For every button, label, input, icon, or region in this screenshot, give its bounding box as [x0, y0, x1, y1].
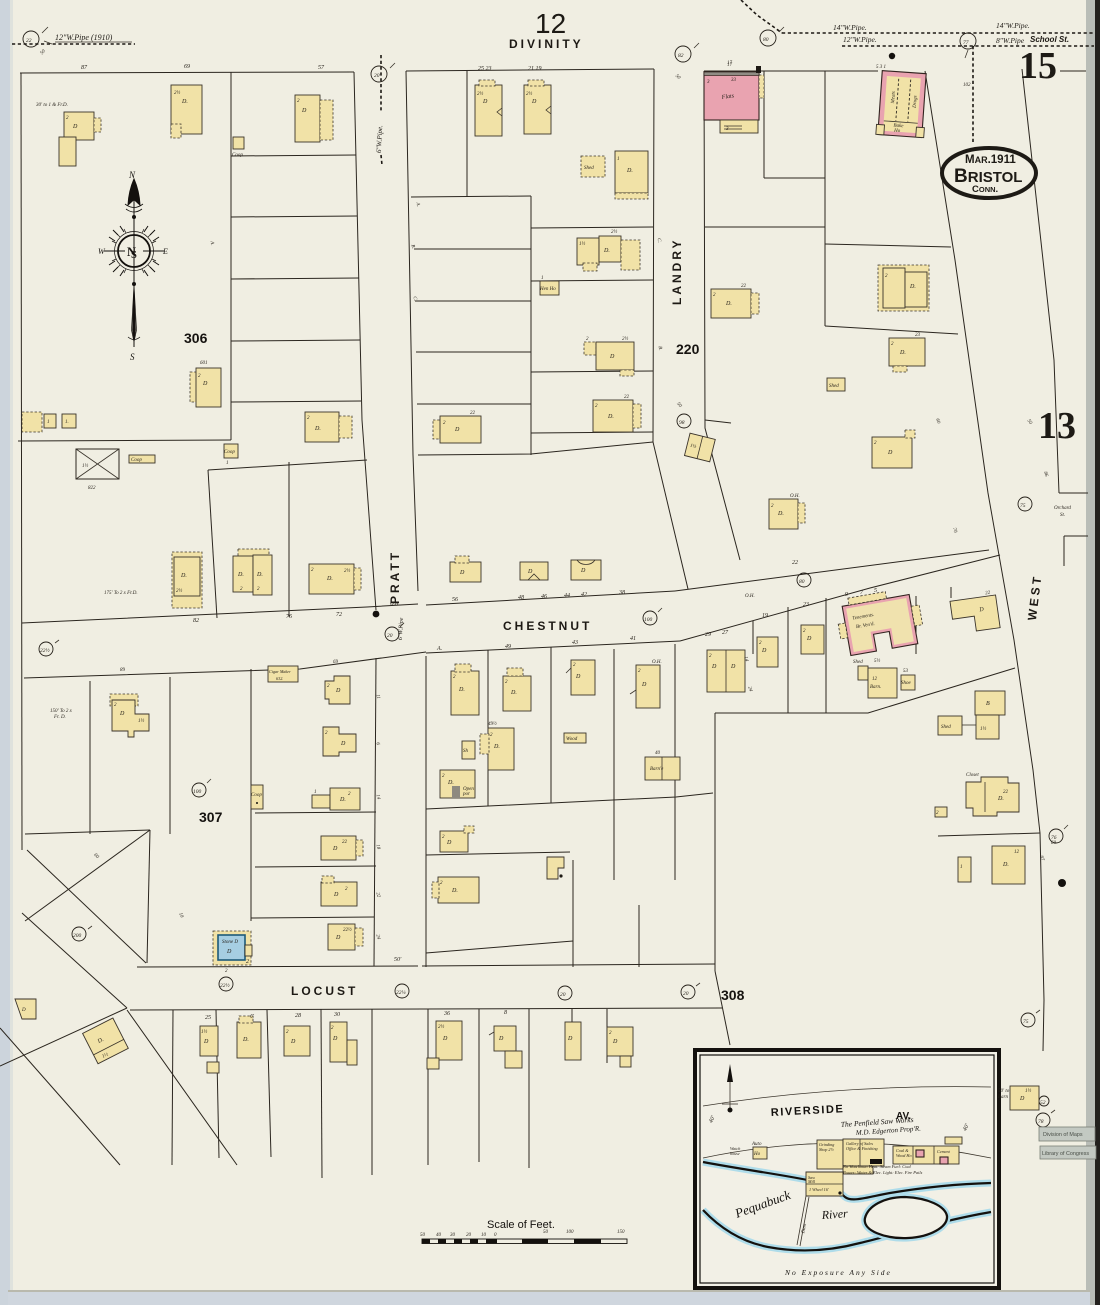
- svg-text:D: D: [612, 1039, 618, 1045]
- svg-text:12: 12: [872, 677, 878, 682]
- svg-text:Shed: Shed: [853, 660, 863, 665]
- svg-text:Library of Congress: Library of Congress: [1042, 1151, 1089, 1157]
- svg-text:D: D: [482, 99, 488, 105]
- svg-text:27: 27: [722, 630, 729, 636]
- svg-text:D: D: [72, 124, 78, 130]
- svg-text:1: 1: [960, 865, 963, 870]
- svg-text:22: 22: [741, 284, 747, 289]
- svg-text:School St.: School St.: [1030, 35, 1069, 44]
- svg-text:2½: 2½: [174, 91, 181, 96]
- svg-text:44: 44: [564, 592, 570, 599]
- svg-text:Shoe: Shoe: [901, 681, 912, 686]
- svg-text:D: D: [567, 1036, 573, 1042]
- svg-text:D: D: [459, 570, 465, 576]
- svg-text:22: 22: [342, 840, 348, 845]
- svg-text:D: D: [580, 568, 586, 574]
- svg-text:A.: A.: [436, 646, 442, 652]
- svg-text:5½: 5½: [874, 659, 881, 664]
- svg-text:D: D: [442, 1036, 448, 1042]
- svg-text:13: 13: [1038, 405, 1076, 447]
- svg-text:1½: 1½: [579, 242, 586, 247]
- svg-text:20: 20: [683, 991, 689, 997]
- svg-text:601: 601: [200, 361, 208, 366]
- svg-text:1½: 1½: [138, 719, 145, 724]
- svg-text:Wood: Wood: [566, 737, 578, 742]
- svg-text:D.: D.: [725, 301, 732, 307]
- svg-text:D: D: [119, 711, 125, 717]
- svg-text:2: 2: [246, 959, 249, 965]
- svg-text:CHESTNUT: CHESTNUT: [503, 619, 592, 633]
- svg-text:40: 40: [436, 1233, 442, 1238]
- svg-text:75: 75: [1020, 503, 1026, 509]
- svg-text:Stone D: Stone D: [222, 940, 238, 945]
- svg-text:LANDRY: LANDRY: [670, 237, 684, 305]
- svg-text:33: 33: [731, 78, 737, 83]
- svg-text:D: D: [641, 682, 647, 688]
- svg-text:69: 69: [184, 64, 190, 70]
- svg-text:D: D: [609, 354, 615, 360]
- svg-text:O.H.: O.H.: [790, 494, 800, 499]
- svg-text:D: D: [730, 664, 736, 670]
- svg-text:D: D: [761, 648, 767, 654]
- svg-text:D: D: [446, 840, 452, 846]
- svg-text:22: 22: [1003, 790, 1009, 795]
- svg-text:19: 19: [762, 613, 768, 619]
- svg-text:220: 220: [676, 341, 700, 357]
- svg-text:2½: 2½: [526, 92, 533, 97]
- svg-text:River: River: [820, 1206, 848, 1222]
- svg-text:22½: 22½: [343, 928, 352, 933]
- svg-text:Power: Water & Elec. Light: El: Power: Water & Elec. Light: Elec. Fire P…: [842, 1170, 923, 1175]
- svg-text:D.: D.: [326, 576, 333, 582]
- svg-text:D.: D.: [237, 572, 244, 578]
- svg-text:C.: C.: [656, 238, 661, 243]
- svg-text:Hen Ho: Hen Ho: [539, 287, 556, 292]
- svg-text:D.: D.: [242, 1037, 249, 1043]
- svg-text:Ho: Ho: [893, 129, 901, 135]
- svg-text:D.: D.: [899, 350, 906, 356]
- svg-text:D: D: [806, 636, 812, 642]
- svg-text:S: S: [131, 250, 137, 261]
- svg-text:D.: D.: [458, 687, 465, 693]
- svg-text:D.: D.: [909, 284, 916, 290]
- svg-text:1½: 1½: [1025, 1089, 1032, 1094]
- svg-text:822: 822: [88, 486, 96, 491]
- svg-text:O.H.: O.H.: [652, 660, 662, 665]
- svg-text:41: 41: [630, 635, 636, 642]
- svg-text:25 23: 25 23: [478, 66, 492, 72]
- svg-text:40: 40: [655, 751, 661, 756]
- svg-text:Sh: Sh: [463, 749, 469, 754]
- svg-text:22½: 22½: [220, 982, 230, 989]
- svg-text:82: 82: [678, 53, 684, 59]
- svg-text:MAR.1911: MAR.1911: [965, 154, 1016, 166]
- svg-text:D.: D.: [451, 888, 458, 894]
- svg-text:98: 98: [679, 420, 685, 426]
- svg-text:1.: 1.: [65, 420, 69, 425]
- svg-text:1½: 1½: [82, 464, 89, 469]
- svg-text:Wood Ho: Wood Ho: [896, 1153, 912, 1158]
- svg-text:D: D: [226, 949, 232, 955]
- svg-text:Division of Maps: Division of Maps: [1043, 1132, 1083, 1138]
- svg-text:Barn'e: Barn'e: [650, 767, 664, 772]
- svg-text:69: 69: [333, 660, 339, 665]
- svg-text:D.: D.: [603, 248, 610, 254]
- svg-text:D.: D.: [447, 780, 454, 786]
- svg-text:14"W.Pipe.: 14"W.Pipe.: [833, 23, 867, 32]
- svg-text:D.: D.: [607, 414, 614, 420]
- svg-text:N: N: [128, 170, 136, 180]
- svg-text:Shed: Shed: [941, 725, 951, 730]
- svg-text:D.: D.: [997, 796, 1004, 802]
- svg-text:72: 72: [336, 612, 342, 618]
- svg-text:307: 307: [199, 809, 223, 825]
- svg-text:D: D: [498, 1036, 504, 1042]
- svg-text:76: 76: [1051, 835, 1057, 841]
- svg-text:30: 30: [450, 1233, 456, 1238]
- svg-text:D.: D.: [626, 168, 633, 174]
- svg-text:D: D: [301, 108, 307, 114]
- svg-text:Office & Finishing: Office & Finishing: [846, 1146, 878, 1151]
- svg-text:1: 1: [226, 461, 229, 466]
- svg-text:B.: B.: [657, 346, 662, 351]
- svg-text:Closet: Closet: [966, 773, 979, 778]
- svg-text:PRATT: PRATT: [388, 550, 402, 604]
- svg-text:57: 57: [318, 65, 325, 71]
- svg-text:2½: 2½: [344, 569, 351, 574]
- svg-text:100: 100: [644, 617, 653, 623]
- svg-text:25: 25: [205, 1015, 211, 1021]
- svg-text:D.: D.: [256, 572, 263, 578]
- svg-text:76: 76: [286, 614, 292, 620]
- svg-text:2½: 2½: [611, 230, 618, 235]
- svg-text:O.H.: O.H.: [745, 594, 755, 599]
- svg-text:89: 89: [120, 668, 126, 673]
- svg-text:50': 50': [394, 957, 402, 963]
- svg-text:Auto: Auto: [751, 1142, 762, 1147]
- svg-text:B.: B.: [410, 244, 416, 249]
- svg-text:50: 50: [420, 1233, 426, 1238]
- svg-text:D: D: [21, 1008, 26, 1013]
- svg-text:1: 1: [541, 276, 544, 281]
- svg-text:Shop 2½: Shop 2½: [819, 1147, 835, 1152]
- svg-text:102: 102: [963, 83, 971, 88]
- svg-text:D: D: [531, 99, 537, 105]
- svg-text:22: 22: [624, 395, 630, 400]
- svg-text:Ho: Ho: [753, 1152, 761, 1157]
- svg-text:D.: D.: [510, 690, 517, 696]
- svg-text:20: 20: [387, 633, 393, 639]
- svg-text:D: D: [887, 450, 893, 456]
- svg-text:12"W.Pipe (1910): 12"W.Pipe (1910): [55, 33, 113, 42]
- svg-text:48: 48: [518, 594, 524, 601]
- svg-text:D: D: [290, 1039, 296, 1045]
- svg-text:200: 200: [73, 933, 82, 939]
- svg-text:Barn.: Barn.: [870, 685, 881, 690]
- svg-text:Drugs: Drugs: [913, 95, 919, 109]
- svg-text:11: 11: [375, 694, 381, 699]
- svg-text:No Watchman Heat: Steam Fuel:: No Watchman Heat: Steam Fuel: Coal: [842, 1164, 912, 1169]
- svg-text:O.H.: O.H.: [390, 602, 400, 607]
- svg-text:D: D: [527, 569, 533, 575]
- svg-text:D.: D.: [339, 797, 346, 803]
- svg-text:1: 1: [314, 790, 317, 795]
- svg-text:Barn: Barn: [998, 1095, 1009, 1100]
- svg-text:23: 23: [915, 333, 921, 338]
- svg-text:22: 22: [26, 38, 32, 44]
- svg-text:St.: St.: [1060, 513, 1065, 518]
- svg-text:B: B: [986, 701, 990, 707]
- svg-text:D: D: [202, 381, 208, 387]
- svg-text:D: D: [332, 1036, 338, 1042]
- svg-text:1 Wheel 16': 1 Wheel 16': [809, 1187, 829, 1192]
- svg-text:49½: 49½: [488, 722, 497, 727]
- svg-text:D: D: [711, 664, 717, 670]
- svg-text:30: 30: [333, 1012, 340, 1018]
- svg-text:D: D: [203, 1039, 209, 1045]
- svg-text:308: 308: [721, 987, 745, 1003]
- svg-text:23: 23: [803, 602, 809, 608]
- svg-text:22¼: 22¼: [396, 990, 406, 996]
- svg-text:10: 10: [481, 1233, 487, 1238]
- svg-text:Coop: Coop: [224, 450, 235, 455]
- svg-text:12: 12: [535, 8, 566, 39]
- svg-text:150' To 2 x: 150' To 2 x: [50, 709, 73, 714]
- svg-text:DIVINITY: DIVINITY: [509, 37, 584, 51]
- svg-text:82: 82: [193, 618, 199, 624]
- svg-text:20: 20: [374, 73, 380, 79]
- svg-text:100: 100: [193, 789, 202, 795]
- svg-text:CONN.: CONN.: [972, 184, 998, 195]
- svg-text:D: D: [1019, 1096, 1025, 1102]
- svg-text:D: D: [333, 892, 339, 898]
- svg-text:Coop: Coop: [131, 458, 142, 463]
- svg-text:BRISTOL: BRISTOL: [954, 166, 1022, 187]
- svg-text:No Exposure Any Side: No Exposure Any Side: [784, 1268, 892, 1277]
- svg-text:8: 8: [504, 1010, 507, 1016]
- svg-text:22: 22: [470, 411, 476, 416]
- svg-text:Shed: Shed: [829, 384, 839, 389]
- svg-text:LOCUST: LOCUST: [291, 984, 358, 998]
- svg-text:D: D: [335, 935, 341, 941]
- svg-text:42: 42: [581, 591, 587, 598]
- svg-text:21 19: 21 19: [528, 66, 542, 72]
- svg-text:12: 12: [1014, 850, 1020, 855]
- svg-text:D: D: [335, 688, 341, 694]
- svg-text:Meats: Meats: [891, 91, 897, 105]
- svg-text:36: 36: [443, 1011, 450, 1017]
- svg-text:87: 87: [81, 65, 88, 71]
- svg-text:100: 100: [566, 1230, 574, 1235]
- svg-text:30' to 1 & Fr.D.: 30' to 1 & Fr.D.: [36, 103, 68, 108]
- svg-text:22½: 22½: [40, 647, 50, 654]
- svg-text:38: 38: [618, 590, 625, 596]
- svg-text:1½: 1½: [980, 727, 987, 732]
- svg-text:1½: 1½: [201, 1030, 208, 1035]
- svg-text:150: 150: [617, 1230, 625, 1235]
- svg-text:53: 53: [903, 669, 909, 674]
- svg-text:46: 46: [541, 593, 547, 600]
- svg-text:2½: 2½: [438, 1025, 445, 1030]
- svg-text:632.: 632.: [276, 676, 283, 681]
- svg-text:2½: 2½: [176, 589, 183, 594]
- svg-text:1: 1: [617, 157, 620, 162]
- svg-text:77: 77: [963, 40, 969, 46]
- svg-text:52: 52: [1040, 1100, 1046, 1106]
- svg-text:Mill: Mill: [807, 1179, 816, 1184]
- svg-text:Orchard: Orchard: [1054, 506, 1071, 511]
- svg-text:D: D: [454, 427, 460, 433]
- svg-text:80: 80: [799, 579, 805, 585]
- svg-text:D.: D.: [314, 426, 321, 432]
- svg-text:D.: D.: [493, 744, 500, 750]
- svg-text:D.: D.: [180, 573, 187, 579]
- svg-text:D: D: [575, 674, 581, 680]
- svg-text:56: 56: [452, 597, 458, 603]
- svg-text:D: D: [332, 846, 338, 852]
- svg-text:Fr. D.: Fr. D.: [53, 715, 66, 720]
- svg-text:28: 28: [295, 1013, 301, 1019]
- svg-text:12"W.Pipe.: 12"W.Pipe.: [843, 35, 877, 44]
- svg-text:14"W.Pipe.: 14"W.Pipe.: [996, 21, 1030, 30]
- svg-text:6"W.Pipe: 6"W.Pipe: [398, 617, 405, 640]
- svg-text:5: 5: [874, 588, 877, 594]
- svg-text:49: 49: [505, 643, 511, 650]
- svg-text:50: 50: [543, 1230, 549, 1235]
- svg-text:D.: D.: [1002, 862, 1009, 868]
- svg-text:175' To 2 x Fr.D.: 175' To 2 x Fr.D.: [104, 591, 138, 596]
- svg-text:Cigar Maker: Cigar Maker: [269, 669, 291, 674]
- svg-text:6"W.Pipe.: 6"W.Pipe.: [375, 125, 384, 154]
- svg-text:43: 43: [572, 639, 578, 646]
- svg-text:Shed: Shed: [584, 166, 594, 171]
- svg-text:17: 17: [727, 63, 733, 68]
- svg-text:C.: C.: [412, 296, 418, 301]
- svg-text:Cement: Cement: [937, 1149, 951, 1154]
- svg-text:22: 22: [792, 560, 798, 566]
- svg-text:75: 75: [1023, 1019, 1029, 1025]
- svg-text:2½: 2½: [622, 337, 629, 342]
- svg-text:9: 9: [845, 592, 848, 598]
- svg-text:Coop: Coop: [251, 793, 262, 798]
- svg-text:15: 15: [1019, 45, 1057, 87]
- svg-text:Coop: Coop: [232, 153, 243, 158]
- svg-text:D: D: [340, 741, 346, 747]
- svg-text:20: 20: [466, 1233, 472, 1238]
- svg-text:2½: 2½: [477, 92, 484, 97]
- svg-text:S: S: [130, 352, 135, 362]
- svg-text:8"W.Pipe: 8"W.Pipe: [996, 36, 1025, 45]
- svg-text:78: 78: [1038, 1119, 1044, 1125]
- svg-text:29: 29: [705, 632, 711, 638]
- svg-text:D.: D.: [777, 511, 784, 517]
- svg-text:20: 20: [560, 992, 566, 998]
- svg-text:A.: A.: [209, 240, 214, 246]
- svg-text:80: 80: [763, 37, 769, 43]
- svg-text:5 3 1: 5 3 1: [876, 65, 886, 70]
- svg-text:D.: D.: [181, 99, 188, 105]
- svg-text:house: house: [730, 1151, 740, 1156]
- svg-text:50' to: 50' to: [998, 1089, 1010, 1094]
- svg-text:A.: A.: [414, 201, 420, 207]
- svg-text:306: 306: [184, 330, 208, 346]
- svg-text:1: 1: [47, 420, 50, 425]
